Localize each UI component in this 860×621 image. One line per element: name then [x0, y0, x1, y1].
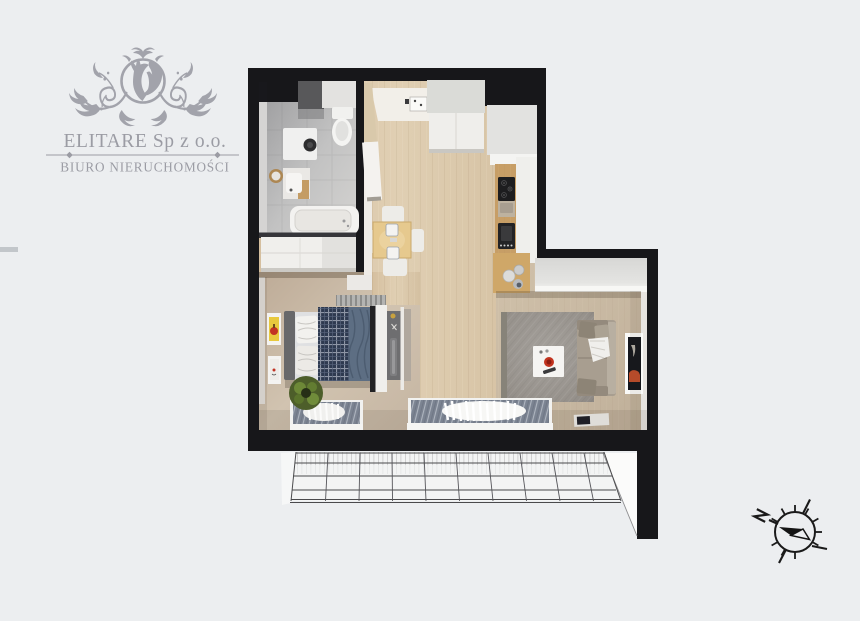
- svg-text:ELITARE Sp z o.o.: ELITARE Sp z o.o.: [64, 131, 227, 152]
- svg-text:BIURO NIERUCHOMOŚCI: BIURO NIERUCHOMOŚCI: [60, 160, 229, 175]
